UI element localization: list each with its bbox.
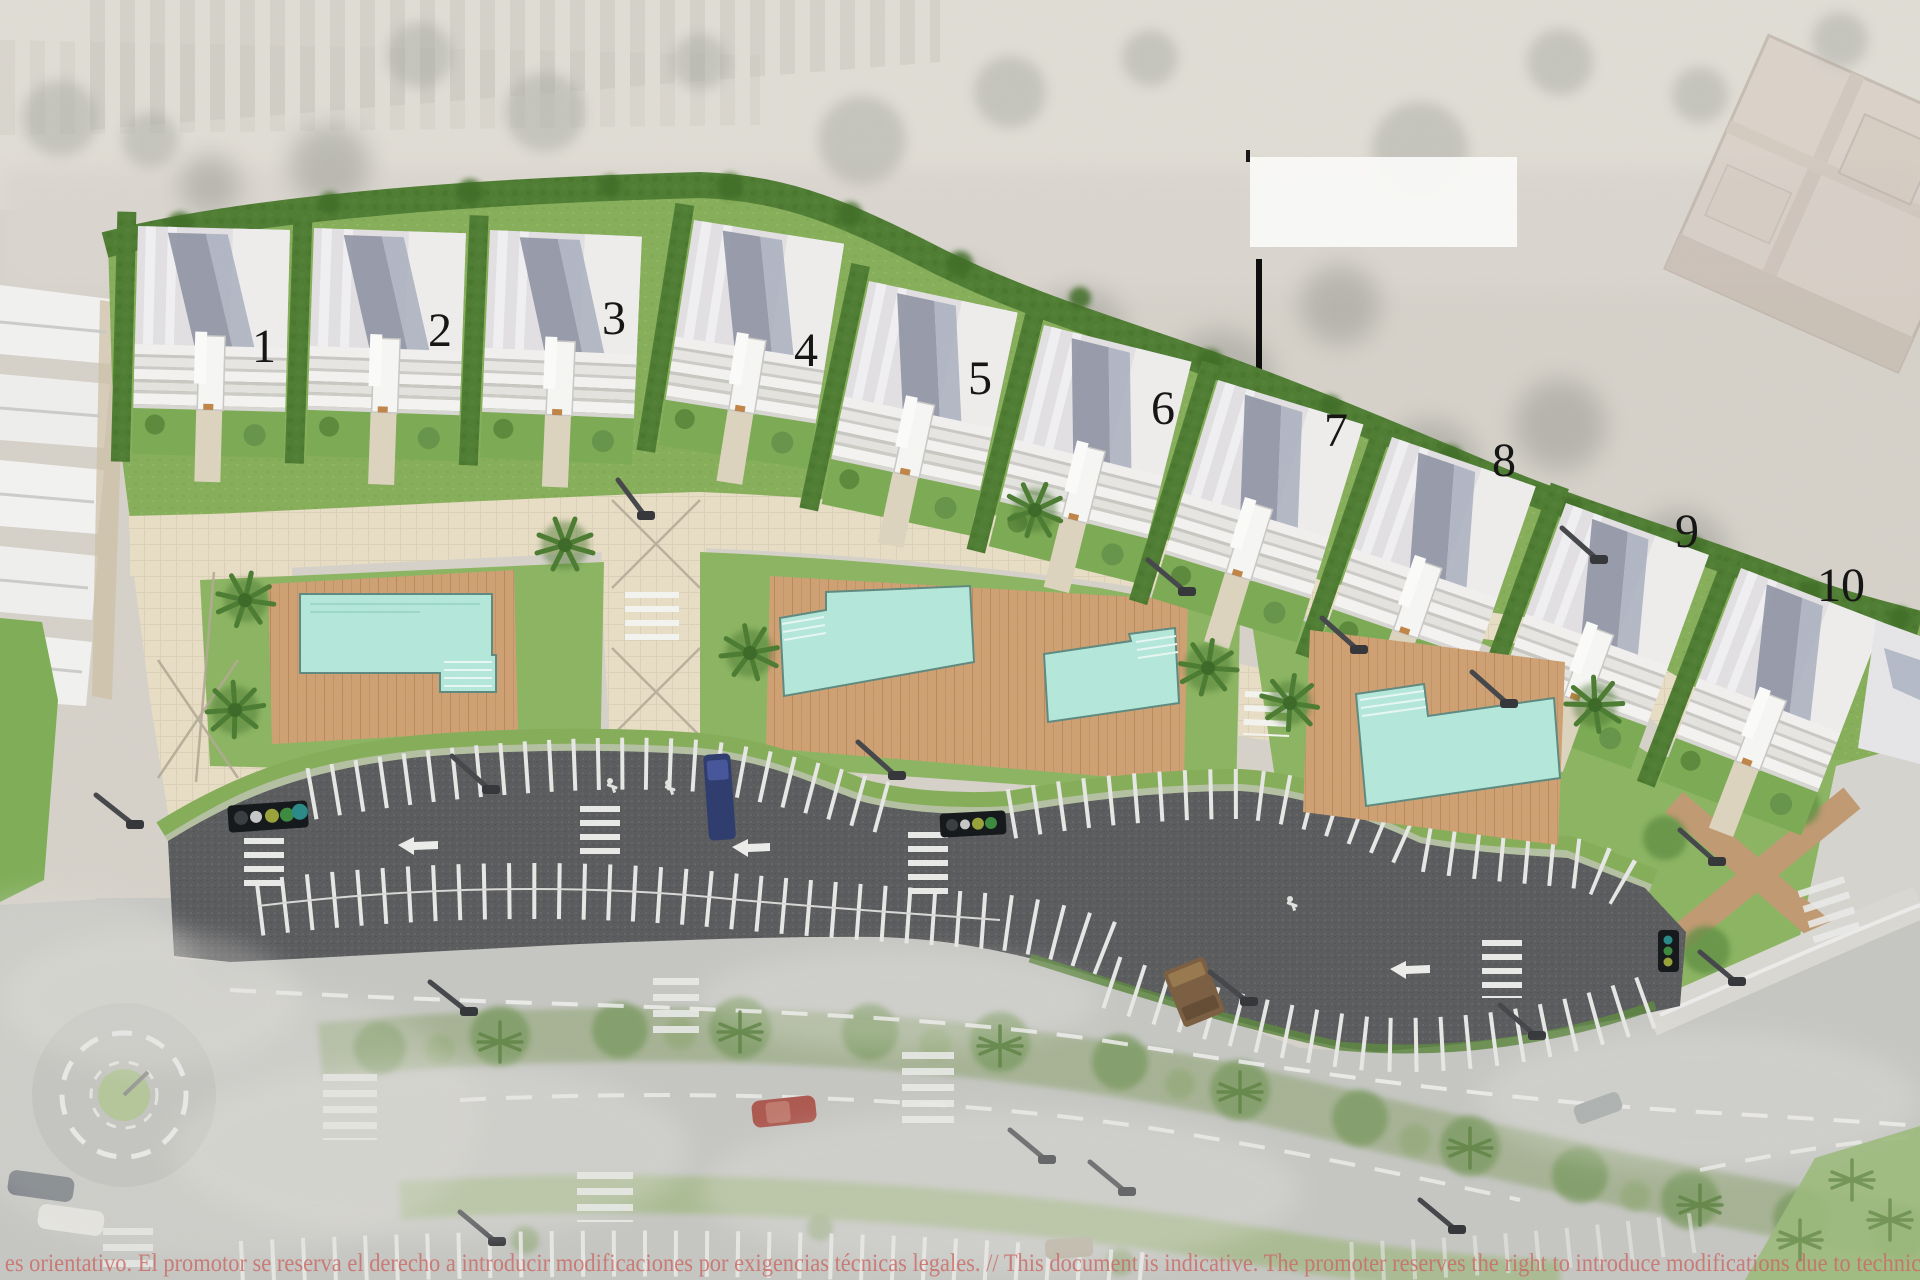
svg-text:o es orientativo. El promotor: o es orientativo. El promotor se reserva… xyxy=(0,1248,1920,1277)
